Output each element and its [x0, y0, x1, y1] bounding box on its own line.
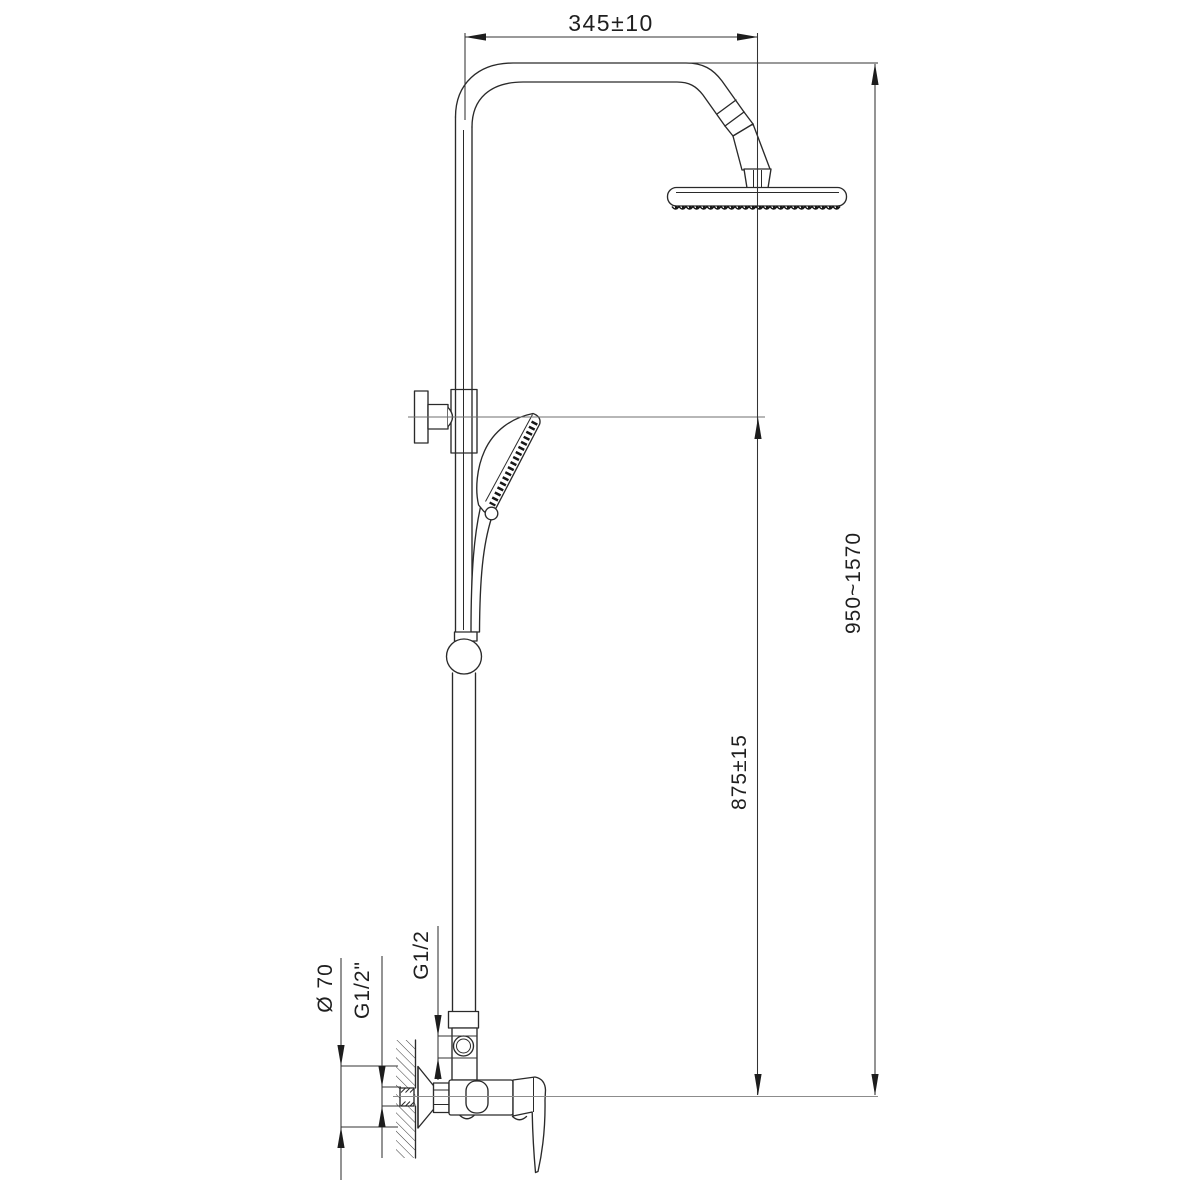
valve-outlet: [460, 1116, 527, 1120]
dim-wall-thread: G1/2": [351, 956, 401, 1158]
shower-column-drawing: 345±10 950~1570 875±15 Ø 70 G1/2": [0, 0, 1200, 1200]
dim-overall-height: 950~1570: [690, 63, 879, 1096]
mixer-lever-handle: [513, 1077, 546, 1173]
shower-arm: [456, 63, 754, 136]
top-width-label: 345±10: [568, 10, 654, 36]
hand-shower-loop: [485, 507, 498, 520]
hand-shower: [471, 414, 540, 633]
mid-height-label: 875±15: [728, 734, 751, 810]
wall-thread-label: G1/2": [351, 961, 374, 1019]
locking-ball-joint: [447, 632, 482, 674]
overall-height-label: 950~1570: [842, 532, 865, 634]
riser-thread-label: G1/2: [410, 930, 433, 980]
dim-mid-height: 875±15: [728, 418, 762, 1096]
hex-nut: [434, 1083, 450, 1113]
hand-shower-handle: [471, 507, 492, 632]
dim-top-width: 345±10: [465, 10, 758, 1095]
wall-section: [396, 1040, 416, 1158]
mixer-valve: [418, 1012, 546, 1173]
locking-ring: [447, 639, 482, 674]
riser-pipe: [453, 117, 476, 1012]
riser-collar: [449, 1012, 479, 1029]
escutcheon-diameter-label: Ø 70: [314, 963, 337, 1013]
technical-drawing-page: 345±10 950~1570 875±15 Ø 70 G1/2": [0, 0, 1200, 1200]
escutcheon: [418, 1067, 435, 1129]
ball-joint-cone: [733, 124, 770, 170]
